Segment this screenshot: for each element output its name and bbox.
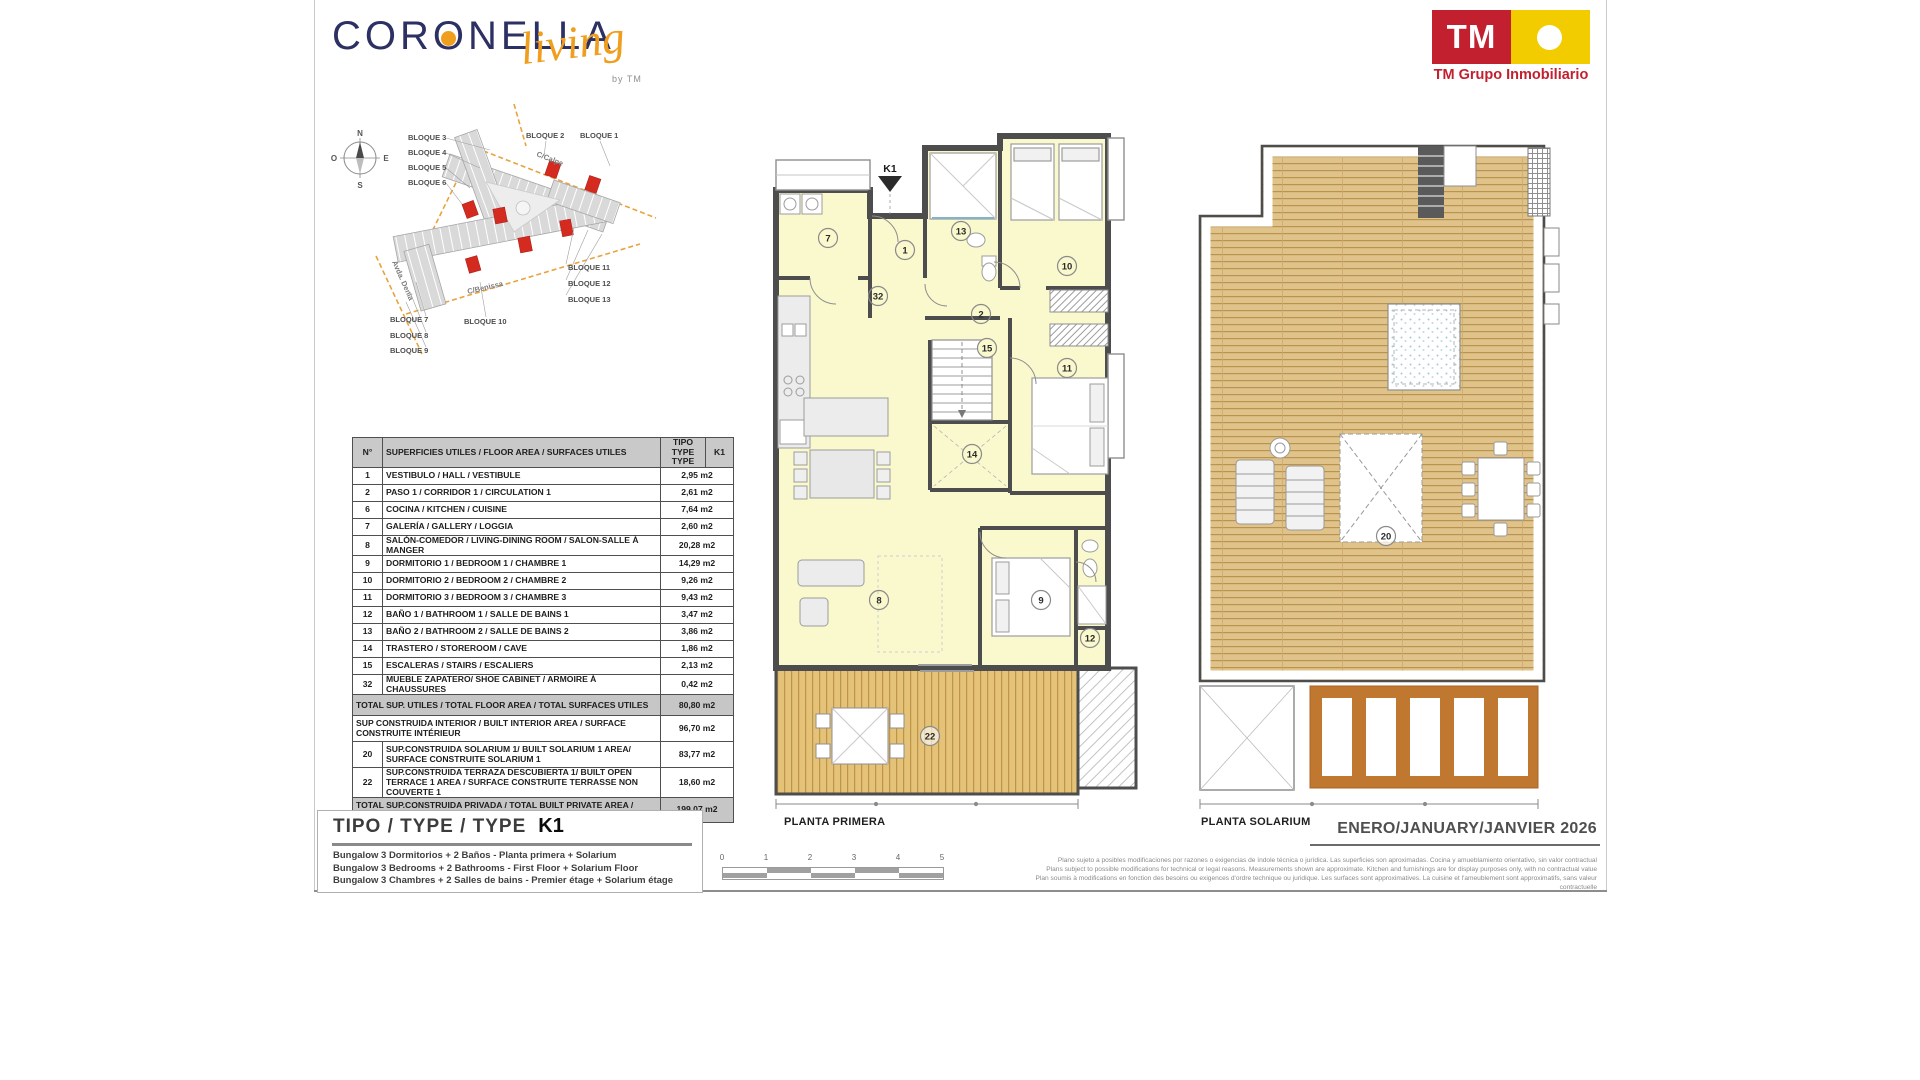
entrance-arrow-icon (878, 176, 902, 192)
site-label-bloque-7: BLOQUE 7 (390, 315, 428, 324)
site-label-bloque-10: BLOQUE 10 (464, 317, 507, 326)
site-label-bloque-8: BLOQUE 8 (390, 331, 428, 340)
logo-part1: COR (332, 14, 433, 58)
scale-tick: 0 (712, 853, 732, 862)
site-label-bloque-2: BLOQUE 2 (526, 131, 564, 140)
ac-unit (1544, 228, 1559, 256)
plan-primera: K1 7 1 13 10 32 2 15 11 14 8 (776, 136, 1136, 809)
unit-marker-label: K1 (883, 163, 897, 175)
table-row: 1VESTIBULO / HALL / VESTIBULE2,95 m2 (353, 467, 734, 484)
table-row: 32MUEBLE ZAPATERO/ SHOE CABINET / ARMOIR… (353, 675, 734, 695)
dimension-line (1200, 799, 1538, 809)
site-label-bloque-12: BLOQUE 12 (568, 279, 611, 288)
compass-icon: N S E O (331, 129, 389, 190)
areas-table: N° SUPERFICIES UTILES / FLOOR AREA / SUR… (352, 437, 734, 823)
table-row: 2PASO 1 / CORRIDOR 1 / CIRCULATION 12,61… (353, 484, 734, 501)
table-row: 11DORMITORIO 3 / BEDROOM 3 / CHAMBRE 39,… (353, 590, 734, 607)
tm-logo-sun-icon (1537, 25, 1562, 50)
site-label-bloque-6: BLOQUE 6 (408, 178, 446, 187)
room-number: 1 (902, 246, 908, 257)
plan-solarium: 20 (1200, 146, 1559, 809)
room-number: 32 (873, 292, 884, 303)
site-label-bloque-11: BLOQUE 11 (568, 263, 610, 272)
vent-grid (1528, 148, 1550, 216)
room-number: 14 (967, 450, 978, 461)
site-street-benissa: C/Benissa (466, 279, 504, 296)
room-number: 15 (982, 344, 993, 355)
type-title: TIPO / TYPE / TYPEK1 (333, 815, 564, 838)
type-code: K1 (538, 815, 564, 837)
room-number: 9 (1038, 596, 1043, 607)
dimension-line (776, 799, 1078, 809)
stair-core (1418, 146, 1444, 218)
type-line-en: Bungalow 3 Bedrooms + 2 Bathrooms - Firs… (333, 863, 693, 876)
room-number: 20 (1381, 532, 1392, 543)
built-solarium-row: 20SUP.CONSTRUIDA SOLARIUM 1/ BUILT SOLAR… (353, 742, 734, 768)
compass-north: N (357, 129, 363, 138)
scale-tick: 3 (844, 853, 864, 862)
legal-disclaimer: Plano sujeto a posibles modificaciones p… (997, 856, 1597, 892)
ac-unit (1544, 264, 1559, 292)
table-row: 15ESCALERAS / STAIRS / ESCALIERS2,13 m2 (353, 658, 734, 675)
site-label-bloque-5: BLOQUE 5 (408, 163, 446, 172)
balcony-strip (1108, 138, 1124, 220)
scale-tick: 2 (800, 853, 820, 862)
site-label-bloque-1: BLOQUE 1 (580, 131, 618, 140)
tm-logo-red-square: TM (1432, 10, 1511, 64)
bedroom1-bed (992, 558, 1070, 636)
areas-table-header-row: N° SUPERFICIES UTILES / FLOOR AREA / SUR… (353, 438, 734, 468)
balcony-strip (1108, 354, 1124, 458)
room-number: 7 (825, 234, 830, 245)
type-line-fr: Bungalow 3 Chambres + 2 Salles de bains … (333, 875, 693, 888)
disclaimer-fr: Plan soumis à modifications en fonction … (997, 874, 1597, 892)
total-utiles-row: TOTAL SUP. UTILES / TOTAL FLOOR AREA / T… (353, 695, 734, 716)
table-row: 9DORMITORIO 1 / BEDROOM 1 / CHAMBRE 114,… (353, 556, 734, 573)
scale-tick: 5 (932, 853, 952, 862)
plan-primera-caption: PLANTA PRIMERA (784, 816, 885, 828)
tm-logo-caption: TM Grupo Inmobiliario (1428, 67, 1594, 83)
sheet-border-left (314, 0, 315, 891)
unit-marker-k1: K1 (878, 163, 902, 214)
skylight (1388, 304, 1460, 390)
site-label-bloque-3: BLOQUE 3 (408, 133, 446, 142)
table-row: 7GALERÍA / GALLERY / LOGGIA2,60 m2 (353, 518, 734, 535)
wardrobe (1050, 290, 1108, 312)
floor-plans: K1 7 1 13 10 32 2 15 11 14 8 (770, 128, 1612, 818)
built-interior-row: SUP CONSTRUIDA INTERIOR / BUILT INTERIOR… (353, 716, 734, 742)
room-number: 8 (876, 596, 881, 607)
site-plan: N S E O BLOQUE 3 BLOQUE 4 BLOQUE 5 BLOQU… (318, 96, 660, 374)
built-terrace-row: 22SUP.CONSTRUIDA TERRAZA DESCUBIERTA 1/ … (353, 768, 734, 798)
table-row: 14TRASTERO / STOREROOM / CAVE1,86 m2 (353, 641, 734, 658)
scale-bar: 0 1 2 3 4 5 (722, 853, 952, 883)
disclaimer-es: Plano sujeto a posibles modificaciones p… (997, 856, 1597, 865)
table-row: 13BAÑO 2 / BATHROOM 2 / SALLE DE BAINS 2… (353, 624, 734, 641)
type-description: Bungalow 3 Dormitorios + 2 Baños - Plant… (333, 850, 693, 888)
room-number: 2 (978, 310, 983, 321)
open-bay-hatched (1078, 668, 1136, 788)
site-label-bloque-9: BLOQUE 9 (390, 346, 428, 355)
ac-unit (1544, 304, 1559, 324)
pergola-beams (1310, 686, 1538, 788)
table-row: 12BAÑO 1 / BATHROOM 1 / SALLE DE BAINS 1… (353, 607, 734, 624)
room-number: 11 (1062, 364, 1073, 375)
col-num-header: N° (353, 438, 383, 468)
table-row: 10DORMITORIO 2 / BEDROOM 2 / CHAMBRE 29,… (353, 573, 734, 590)
date-rule (1310, 844, 1600, 846)
logo-o: O (433, 14, 468, 59)
site-label-bloque-4: BLOQUE 4 (408, 148, 447, 157)
room-number: 12 (1085, 634, 1096, 645)
table-row: 6COCINA / KITCHEN / CUISINE7,64 m2 (353, 501, 734, 518)
site-label-bloque-13: BLOQUE 13 (568, 295, 611, 304)
scale-rule (722, 867, 944, 880)
bedroom3-bed (1032, 378, 1108, 474)
type-title-rule (332, 843, 692, 846)
scale-tick: 4 (888, 853, 908, 862)
logo-byline: by TM (612, 74, 642, 84)
open-terrace-below (1200, 686, 1294, 790)
disclaimer-en: Plans subject to possible modifications … (997, 865, 1597, 874)
compass-east: E (383, 154, 389, 163)
sheet-date: ENERO/JANUARY/JANVIER 2026 (1307, 820, 1597, 838)
void-dashed-square (1340, 434, 1422, 542)
logo-living-script: living (517, 10, 627, 75)
col-k1-header: K1 (706, 438, 734, 468)
room-number: 22 (925, 732, 936, 743)
scale-tick: 1 (756, 853, 776, 862)
plan-solarium-caption: PLANTA SOLARIUM (1201, 816, 1311, 828)
wardrobe (1050, 324, 1108, 346)
type-line-es: Bungalow 3 Dormitorios + 2 Baños - Plant… (333, 850, 693, 863)
table-row: 8SALÓN-COMEDOR / LIVING-DINING ROOM / SA… (353, 535, 734, 555)
stair-landing (1444, 146, 1476, 186)
room-number: 13 (956, 227, 967, 238)
compass-south: S (357, 181, 363, 190)
room-number: 10 (1062, 262, 1073, 273)
plan-sheet: CORONELLA living by TM TM TM Grupo Inmob… (0, 0, 1920, 1080)
col-desc-header: SUPERFICIES UTILES / FLOOR AREA / SURFAC… (383, 438, 661, 468)
compass-west: O (331, 154, 337, 163)
col-type-header: TIPO TYPE TYPE (661, 438, 706, 468)
